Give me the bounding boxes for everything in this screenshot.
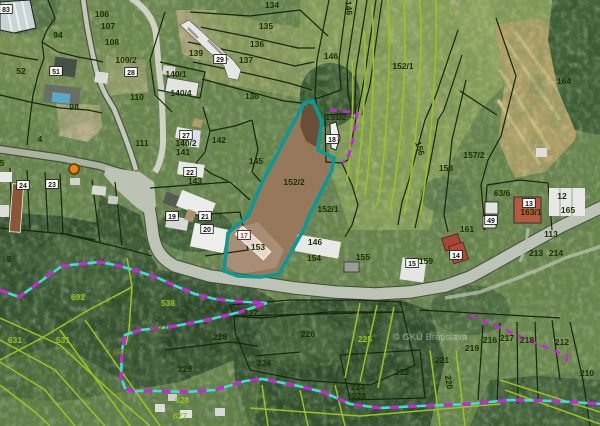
svg-text:63/6: 63/6 (494, 188, 511, 198)
svg-text:229: 229 (178, 364, 192, 374)
svg-text:213: 213 (529, 248, 543, 258)
svg-text:134: 134 (265, 0, 279, 10)
svg-text:628: 628 (175, 395, 189, 405)
svg-text:531: 531 (56, 335, 70, 345)
svg-text:110: 110 (130, 92, 144, 102)
svg-text:138: 138 (245, 91, 259, 101)
svg-text:9: 9 (7, 254, 12, 264)
svg-text:21: 21 (201, 214, 209, 221)
svg-text:13: 13 (525, 201, 533, 208)
svg-text:163/1: 163/1 (520, 207, 542, 217)
svg-text:29: 29 (216, 57, 224, 64)
svg-text:109/2: 109/2 (115, 55, 137, 65)
svg-text:145: 145 (249, 156, 263, 166)
svg-text:111: 111 (135, 138, 149, 148)
svg-text:212: 212 (555, 337, 569, 347)
svg-text:218: 218 (520, 335, 534, 345)
svg-text:98: 98 (69, 102, 79, 112)
svg-text:227: 227 (244, 308, 258, 318)
svg-text:158: 158 (439, 163, 453, 173)
svg-text:164: 164 (557, 76, 571, 86)
svg-text:137: 137 (239, 55, 253, 65)
svg-text:223: 223 (352, 391, 366, 401)
svg-text:© GKÚ Bratislava: © GKÚ Bratislava (393, 332, 468, 343)
svg-text:153: 153 (251, 242, 265, 252)
svg-text:107: 107 (101, 21, 115, 31)
svg-text:4: 4 (38, 134, 43, 144)
svg-text:83: 83 (2, 7, 10, 14)
svg-text:146: 146 (343, 1, 354, 16)
svg-text:139: 139 (189, 48, 203, 58)
svg-text:210: 210 (580, 368, 594, 378)
svg-text:20: 20 (203, 227, 211, 234)
svg-text:15: 15 (408, 261, 416, 268)
svg-text:228: 228 (213, 332, 227, 342)
svg-text:627: 627 (173, 411, 187, 421)
svg-text:5: 5 (0, 158, 5, 168)
svg-text:14: 14 (452, 253, 460, 260)
svg-text:106: 106 (95, 9, 109, 19)
svg-text:630: 630 (112, 347, 127, 357)
svg-text:222: 222 (395, 367, 409, 377)
svg-text:159: 159 (419, 256, 433, 266)
svg-text:219: 219 (465, 343, 479, 353)
svg-text:113: 113 (544, 229, 558, 239)
svg-text:155: 155 (356, 252, 370, 262)
svg-text:217: 217 (500, 333, 514, 343)
svg-text:692: 692 (71, 292, 85, 302)
svg-text:152/2: 152/2 (283, 177, 305, 187)
svg-text:146: 146 (324, 51, 338, 61)
svg-text:151/2: 151/2 (325, 112, 347, 122)
svg-text:49: 49 (487, 218, 495, 225)
svg-text:24: 24 (19, 183, 27, 190)
svg-text:140/1: 140/1 (165, 69, 187, 79)
svg-text:27: 27 (182, 133, 190, 140)
svg-text:12: 12 (557, 191, 567, 201)
svg-text:225: 225 (358, 334, 372, 344)
svg-text:538: 538 (161, 298, 175, 308)
svg-text:537: 537 (152, 324, 167, 334)
svg-text:221: 221 (435, 355, 449, 365)
svg-text:152/1: 152/1 (392, 61, 414, 71)
svg-text:52: 52 (16, 66, 26, 76)
svg-text:94: 94 (53, 30, 63, 40)
svg-text:216: 216 (483, 335, 497, 345)
svg-text:631: 631 (8, 335, 22, 345)
svg-text:226: 226 (301, 329, 315, 339)
svg-text:214: 214 (549, 248, 563, 258)
svg-text:141: 141 (176, 147, 190, 157)
svg-text:108: 108 (105, 37, 119, 47)
svg-text:165: 165 (561, 205, 575, 215)
svg-text:143: 143 (188, 176, 202, 186)
svg-text:17: 17 (240, 233, 248, 240)
svg-text:224: 224 (257, 358, 271, 368)
svg-text:146: 146 (308, 237, 322, 247)
svg-text:28: 28 (127, 70, 135, 77)
svg-text:51: 51 (52, 69, 60, 76)
svg-text:22: 22 (186, 170, 194, 177)
svg-text:140/4: 140/4 (170, 88, 192, 98)
svg-text:19: 19 (168, 214, 176, 221)
svg-text:142: 142 (212, 135, 226, 145)
svg-text:157/2: 157/2 (463, 150, 485, 160)
svg-text:154: 154 (307, 253, 321, 263)
svg-text:23: 23 (48, 182, 56, 189)
svg-text:161: 161 (460, 224, 474, 234)
svg-text:136: 136 (250, 39, 264, 49)
svg-text:152/1: 152/1 (317, 204, 339, 214)
svg-text:18: 18 (328, 137, 336, 144)
svg-text:135: 135 (259, 21, 273, 31)
